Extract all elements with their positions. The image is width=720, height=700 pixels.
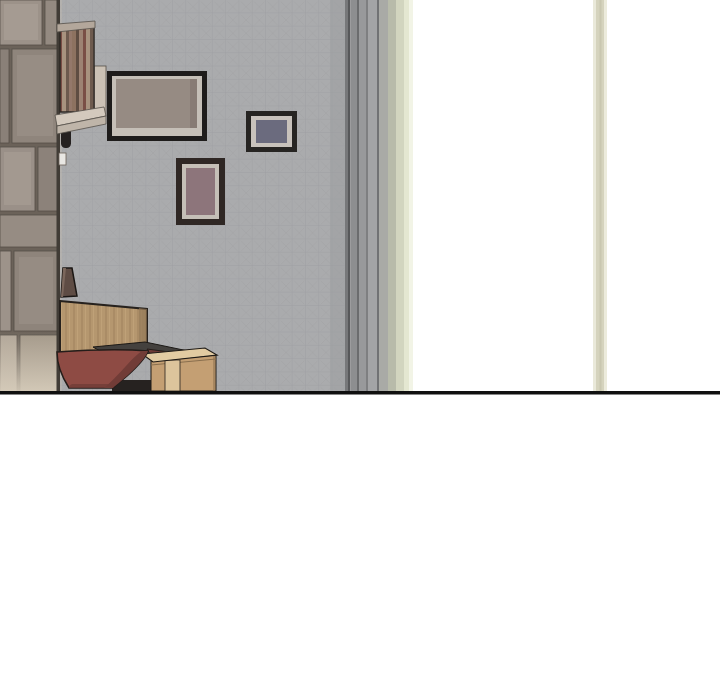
frame-picture bbox=[256, 120, 287, 143]
nightstand bbox=[142, 348, 217, 391]
brick-wall bbox=[0, 0, 58, 392]
door-frame bbox=[345, 0, 413, 391]
illustration-canvas bbox=[0, 0, 720, 700]
nightstand-leg bbox=[165, 360, 180, 391]
wall-edge-strip bbox=[593, 0, 607, 391]
book-spines bbox=[60, 27, 94, 112]
frame-picture bbox=[116, 79, 197, 128]
picture-frame-small bbox=[246, 111, 297, 152]
plaster-wall-edge-shade bbox=[330, 0, 347, 392]
picture-frame-large bbox=[107, 71, 207, 141]
frame-picture bbox=[186, 168, 215, 215]
panel-border-line bbox=[0, 391, 720, 395]
comic-panel bbox=[0, 0, 720, 700]
light-switch bbox=[59, 153, 66, 165]
picture-frame-portrait bbox=[176, 158, 225, 225]
